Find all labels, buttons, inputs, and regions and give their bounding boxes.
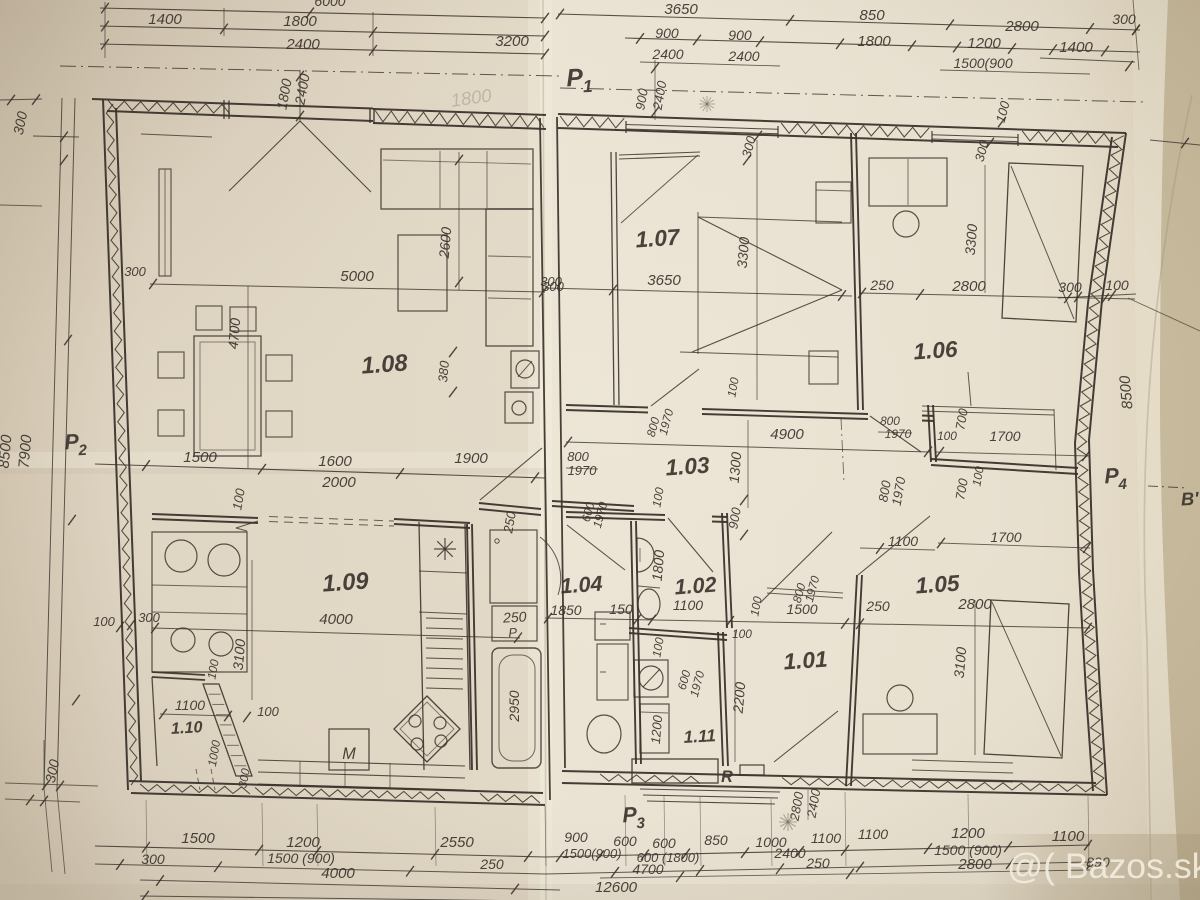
svg-text:2000: 2000 xyxy=(321,474,356,491)
svg-text:300: 300 xyxy=(138,610,160,625)
svg-text:1: 1 xyxy=(582,76,593,96)
svg-text:1.06: 1.06 xyxy=(913,335,959,364)
svg-text:7900: 7900 xyxy=(16,434,36,470)
svg-text:1100: 1100 xyxy=(175,697,205,713)
svg-text:1800: 1800 xyxy=(857,33,891,50)
svg-text:1100: 1100 xyxy=(888,533,918,549)
svg-text:1100: 1100 xyxy=(673,597,703,613)
svg-text:100: 100 xyxy=(937,429,957,443)
svg-text:1400: 1400 xyxy=(148,11,182,28)
svg-text:380: 380 xyxy=(435,359,452,383)
svg-text:2950: 2950 xyxy=(506,690,522,722)
svg-text:1850: 1850 xyxy=(550,602,581,618)
svg-text:3100: 3100 xyxy=(951,646,970,679)
svg-text:1900: 1900 xyxy=(454,450,488,467)
svg-text:100: 100 xyxy=(93,614,115,629)
svg-text:2400: 2400 xyxy=(651,46,683,62)
svg-text:300: 300 xyxy=(1058,279,1082,295)
svg-text:4000: 4000 xyxy=(319,611,353,628)
svg-text:2: 2 xyxy=(77,442,88,460)
svg-text:300: 300 xyxy=(540,274,562,289)
svg-text:1.09: 1.09 xyxy=(321,567,370,597)
svg-text:5000: 5000 xyxy=(340,268,374,285)
svg-text:300: 300 xyxy=(124,264,146,279)
svg-text:3300: 3300 xyxy=(734,236,753,269)
svg-text:1.02: 1.02 xyxy=(674,572,718,600)
svg-text:600: 600 xyxy=(652,835,676,851)
svg-text:3100: 3100 xyxy=(230,638,249,671)
svg-text:1100: 1100 xyxy=(858,826,888,842)
svg-text:3650: 3650 xyxy=(647,272,681,289)
svg-text:2600: 2600 xyxy=(436,226,455,260)
svg-text:1500: 1500 xyxy=(183,449,217,466)
svg-text:250: 250 xyxy=(479,856,504,872)
svg-text:100: 100 xyxy=(257,704,279,719)
svg-text:4700: 4700 xyxy=(225,317,244,350)
svg-text:B': B' xyxy=(1180,488,1199,510)
svg-text:3: 3 xyxy=(636,815,646,832)
svg-text:1500(900: 1500(900 xyxy=(953,55,1012,71)
svg-text:1200: 1200 xyxy=(648,714,666,745)
svg-text:1.08: 1.08 xyxy=(360,349,409,379)
svg-text:1.05: 1.05 xyxy=(915,569,961,598)
svg-text:1.11: 1.11 xyxy=(683,725,716,747)
svg-text:4900: 4900 xyxy=(770,426,804,443)
svg-text:2800: 2800 xyxy=(957,856,992,873)
svg-text:4: 4 xyxy=(1117,476,1128,494)
svg-text:1300: 1300 xyxy=(726,451,745,484)
svg-text:2800: 2800 xyxy=(951,278,986,295)
svg-text:1700: 1700 xyxy=(989,428,1020,444)
svg-text:900: 900 xyxy=(728,27,752,43)
svg-text:6000: 6000 xyxy=(314,0,345,9)
svg-text:2400: 2400 xyxy=(285,36,320,53)
svg-text:R: R xyxy=(721,768,733,786)
svg-text:900: 900 xyxy=(655,25,679,41)
svg-text:150: 150 xyxy=(609,601,633,617)
svg-text:250: 250 xyxy=(502,608,527,625)
svg-text:1800: 1800 xyxy=(649,549,668,582)
svg-text:850: 850 xyxy=(859,7,885,24)
svg-text:2550: 2550 xyxy=(439,834,474,851)
svg-text:12600: 12600 xyxy=(595,879,638,896)
svg-text:850: 850 xyxy=(704,832,728,848)
svg-text:1.07: 1.07 xyxy=(635,223,682,252)
svg-text:@( Bazos.sk: @( Bazos.sk xyxy=(1007,846,1200,886)
svg-text:250: 250 xyxy=(805,855,830,871)
svg-text:1500(900): 1500(900) xyxy=(562,846,621,861)
svg-text:800: 800 xyxy=(567,449,589,464)
svg-text:1.03: 1.03 xyxy=(665,451,711,480)
svg-text:100: 100 xyxy=(1105,277,1129,293)
svg-text:8500: 8500 xyxy=(1117,374,1137,410)
svg-text:900: 900 xyxy=(564,829,588,845)
svg-text:300: 300 xyxy=(1112,11,1136,27)
svg-text:3300: 3300 xyxy=(962,223,981,256)
svg-text:4700: 4700 xyxy=(632,861,663,877)
svg-text:3200: 3200 xyxy=(495,33,529,50)
svg-text:250: 250 xyxy=(865,598,890,614)
svg-text:P: P xyxy=(566,65,584,93)
svg-text:1500 (900): 1500 (900) xyxy=(267,850,335,866)
svg-text:1400: 1400 xyxy=(1059,39,1093,56)
svg-text:300: 300 xyxy=(141,851,165,867)
svg-text:2800: 2800 xyxy=(1004,18,1039,35)
svg-text:1.10: 1.10 xyxy=(171,718,203,738)
svg-text:1700: 1700 xyxy=(990,529,1021,545)
svg-text:1100: 1100 xyxy=(1052,828,1085,845)
svg-text:1200: 1200 xyxy=(286,834,320,851)
svg-text:800: 800 xyxy=(880,414,900,428)
svg-text:2400: 2400 xyxy=(773,845,805,861)
svg-text:1500: 1500 xyxy=(181,830,215,847)
svg-text:1200: 1200 xyxy=(967,35,1001,52)
svg-text:1600: 1600 xyxy=(318,453,352,470)
svg-text:100: 100 xyxy=(732,627,752,641)
svg-text:1800: 1800 xyxy=(283,13,317,30)
svg-text:1970: 1970 xyxy=(568,463,598,478)
svg-text:4000: 4000 xyxy=(321,865,355,882)
svg-text:250: 250 xyxy=(869,277,894,293)
svg-text:2400: 2400 xyxy=(727,48,759,64)
svg-text:1.04: 1.04 xyxy=(560,571,604,599)
svg-text:M: M xyxy=(342,745,356,763)
svg-text:3650: 3650 xyxy=(664,1,698,18)
svg-text:1970: 1970 xyxy=(885,427,912,441)
svg-text:2200: 2200 xyxy=(730,681,749,715)
svg-text:1100: 1100 xyxy=(811,830,841,846)
svg-text:1.01: 1.01 xyxy=(783,646,829,675)
